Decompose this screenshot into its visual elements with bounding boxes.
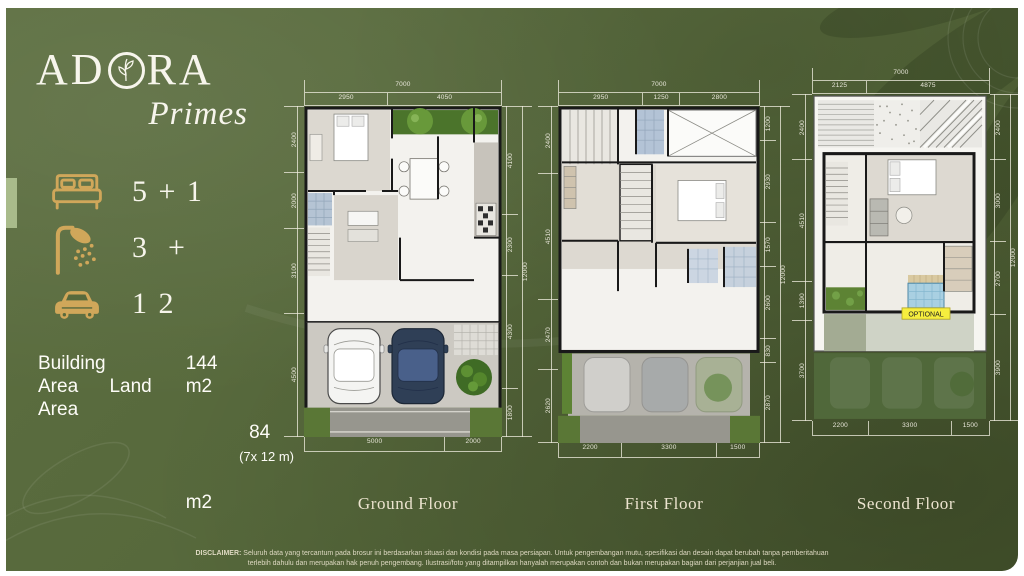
- dimension-label: 1200: [765, 116, 772, 131]
- dimension-segment: 12000: [1006, 94, 1018, 421]
- dimension-segment: 1200: [760, 106, 776, 140]
- second-floor-title: Second Floor: [792, 494, 1018, 514]
- dimension-segment: 3700: [792, 320, 812, 421]
- dimension-segment: 1800: [502, 388, 518, 437]
- dimension-segment: 4100: [502, 106, 518, 214]
- dimension-label: 2470: [545, 327, 552, 342]
- dimension-label: 2620: [545, 398, 552, 413]
- dimension-label: 2125: [832, 81, 847, 91]
- dimension-label: 2870: [765, 395, 772, 410]
- optional-label: OPTIONAL: [908, 311, 943, 319]
- dimension-segment: 2400: [792, 94, 812, 159]
- first-floor-plan: [558, 106, 760, 443]
- dimension-label: 4875: [920, 81, 935, 91]
- dimension-label: 1500: [730, 443, 745, 453]
- dimension-label: 7000: [395, 80, 410, 90]
- dimension-segment: 4875: [866, 81, 990, 94]
- dimension-label: 1250: [653, 93, 668, 103]
- dimension-label: 12000: [780, 265, 787, 284]
- bathrooms-count: 3 +: [132, 231, 187, 265]
- ground-floor-title: Ground Floor: [284, 494, 532, 514]
- spec-bathrooms: 3 +: [50, 226, 204, 270]
- dimension-label: 2600: [765, 295, 772, 310]
- dimension-segment: 12000: [518, 106, 532, 437]
- dimension-segment: 2200: [558, 443, 621, 458]
- dimension-label: 3300: [902, 421, 917, 431]
- dimension-segment: 2400: [284, 106, 304, 172]
- dimension-segment: 4510: [538, 173, 558, 299]
- leaf-circle-icon: [108, 52, 145, 89]
- brand-name-pre: AD: [36, 46, 106, 94]
- first-floor-title: First Floor: [538, 494, 790, 514]
- dim-bottom-segments: 220033001500: [558, 443, 760, 458]
- ground-floor-panel: 7000 29504050 2400200031004500: [284, 80, 532, 452]
- dimension-segment: 4300: [502, 275, 518, 388]
- dimension-label: 2400: [799, 120, 806, 135]
- building-area-label: Building: [38, 352, 152, 375]
- dimension-segment: 2950: [558, 93, 642, 106]
- dimension-segment: 1500: [716, 443, 760, 458]
- land-area-label: Land: [109, 375, 151, 398]
- area-info: Building Area Land Area 144 m2 84 (7x 12…: [38, 352, 294, 514]
- dimension-segment: 2800: [679, 93, 760, 106]
- building-area-unit: m2: [186, 375, 294, 398]
- dimension-segment: 7000: [558, 80, 760, 93]
- dimension-label: 7000: [893, 68, 908, 78]
- dimension-label: 2400: [545, 133, 552, 148]
- dim-bottom-segments: 220033001500: [812, 421, 990, 436]
- ground-floor-plan: [304, 106, 502, 437]
- dim-top-total: 7000: [558, 80, 760, 93]
- dimension-label: 1390: [799, 293, 806, 308]
- dimension-segment: 2600: [760, 266, 776, 339]
- dimension-segment: 2000: [284, 172, 304, 227]
- dim-right-total: 12000: [518, 106, 532, 437]
- dimension-label: 3100: [291, 263, 298, 278]
- area-values: 144 m2 84 (7x 12 m) m2: [186, 352, 294, 514]
- dimension-segment: 2950: [304, 93, 387, 106]
- dimension-label: 2200: [582, 443, 597, 453]
- dimension-label: 4100: [507, 153, 514, 168]
- dimension-label: 3900: [995, 360, 1002, 375]
- dimension-label: 2950: [593, 93, 608, 103]
- building-area-value: 144: [186, 352, 294, 375]
- dimension-segment: 830: [760, 338, 776, 362]
- dim-top-total: 7000: [812, 68, 990, 81]
- dimension-label: 7000: [651, 80, 666, 90]
- dimension-segment: 3000: [990, 159, 1006, 241]
- brochure-canvas: AD RA Primes: [6, 8, 1018, 571]
- dimension-segment: 2870: [760, 362, 776, 443]
- dim-right-segments: 2400300027003900: [990, 94, 1006, 421]
- dimension-segment: 3300: [868, 421, 951, 436]
- land-area-label-2: Area: [38, 398, 152, 421]
- bed-icon: [50, 171, 104, 213]
- dimension-label: 3000: [995, 193, 1002, 208]
- dimension-label: 12000: [1010, 248, 1017, 267]
- dimension-segment: 3300: [621, 443, 715, 458]
- dimension-label: 4050: [437, 93, 452, 103]
- spec-bedrooms: 5 + 1: [50, 170, 204, 214]
- left-accent-tab: [6, 178, 17, 228]
- second-floor-panel: 7000 21254875 2400451013903700: [792, 68, 1018, 436]
- dimension-segment: 2930: [760, 140, 776, 222]
- dimension-label: 1570: [765, 237, 772, 252]
- dimension-segment: 2000: [444, 437, 502, 452]
- brand-block: AD RA Primes: [36, 46, 248, 133]
- land-area-value: 84: [249, 422, 270, 443]
- dimension-label: 1500: [963, 421, 978, 431]
- brand-subtitle: Primes: [36, 96, 248, 133]
- dimension-segment: 2620: [538, 369, 558, 443]
- dimension-segment: 2300: [502, 214, 518, 275]
- disclaimer-line2: terlebih dahulu dan merupakan hak penuh …: [182, 559, 842, 569]
- dimension-label: 2000: [291, 193, 298, 208]
- second-floor-plan: OPTIONAL: [812, 94, 990, 421]
- dim-left-segments: 2400451024702620: [538, 106, 558, 443]
- dim-right-total: 12000: [1006, 94, 1018, 421]
- spec-carport: 1 2: [50, 282, 204, 326]
- dimension-label: 3300: [661, 443, 676, 453]
- first-floor-panel: 7000 295012502800 2400451024702620: [538, 80, 790, 458]
- dimension-label: 2400: [291, 132, 298, 147]
- spec-list: 5 + 1 3 +: [50, 170, 204, 338]
- dimension-segment: 3900: [990, 314, 1006, 421]
- bedrooms-count: 5 + 1: [132, 175, 204, 209]
- dim-top-segments: 21254875: [812, 81, 990, 94]
- dimension-segment: 2400: [990, 94, 1006, 159]
- dim-top-total: 7000: [304, 80, 502, 93]
- optional-tag: OPTIONAL: [902, 308, 950, 319]
- dimension-segment: 2400: [538, 106, 558, 173]
- dim-right-total: 12000: [776, 106, 790, 443]
- disclaimer: DISCLAIMER: Seluruh data yang tercantum …: [6, 549, 1018, 568]
- brochure-page: AD RA Primes: [0, 0, 1024, 576]
- dimension-label: 4300: [507, 324, 514, 339]
- dimension-segment: 1500: [951, 421, 990, 436]
- dimension-segment: 2125: [812, 81, 866, 94]
- dimension-label: 3700: [799, 363, 806, 378]
- dim-top-segments: 295012502800: [558, 93, 760, 106]
- dimension-segment: 2200: [812, 421, 868, 436]
- dimension-label: 4510: [799, 213, 806, 228]
- dimension-segment: 3100: [284, 228, 304, 313]
- dimension-label: 2200: [833, 421, 848, 431]
- dimension-segment: 1250: [642, 93, 678, 106]
- dimension-label: 4500: [291, 367, 298, 382]
- dimension-segment: 4050: [387, 93, 502, 106]
- dimension-segment: 12000: [776, 106, 790, 443]
- dimension-label: 2700: [995, 271, 1002, 286]
- dimension-label: 1800: [507, 405, 514, 420]
- disclaimer-line1: Seluruh data yang tercantum pada brosur …: [243, 550, 828, 557]
- brand-name-post: RA: [147, 46, 214, 94]
- dimension-label: 2930: [765, 174, 772, 189]
- dimension-segment: 1570: [760, 222, 776, 266]
- dim-left-segments: 2400451013903700: [792, 94, 812, 421]
- dimension-label: 2400: [995, 120, 1002, 135]
- dimension-label: 830: [765, 345, 772, 356]
- dimension-label: 2800: [712, 93, 727, 103]
- dimension-segment: 2700: [990, 241, 1006, 314]
- dimension-segment: 4510: [792, 159, 812, 281]
- area-labels: Building Area Land Area: [38, 352, 152, 514]
- dim-right-segments: 4100230043001800: [502, 106, 518, 437]
- dimension-segment: 7000: [812, 68, 990, 81]
- dimension-label: 5000: [367, 437, 382, 447]
- dim-left-segments: 2400200031004500: [284, 106, 304, 437]
- dimension-segment: 7000: [304, 80, 502, 93]
- dimension-segment: 5000: [304, 437, 444, 452]
- disclaimer-prefix: DISCLAIMER:: [195, 550, 241, 557]
- dimension-segment: 1390: [792, 281, 812, 319]
- dim-right-segments: 12002930157026008302870: [760, 106, 776, 443]
- land-area-unit: m2: [186, 491, 294, 514]
- dimension-label: 2950: [338, 93, 353, 103]
- dimension-label: 2000: [466, 437, 481, 447]
- brand-name: AD RA: [36, 46, 248, 94]
- dim-top-segments: 29504050: [304, 93, 502, 106]
- building-area-label-2: Area: [38, 375, 78, 398]
- dimension-segment: 4500: [284, 313, 304, 437]
- shower-icon: [50, 227, 104, 269]
- dimension-label: 2300: [507, 237, 514, 252]
- dimension-label: 4510: [545, 229, 552, 244]
- dimension-label: 12000: [522, 262, 529, 281]
- dim-bottom-segments: 50002000: [304, 437, 502, 452]
- carport-count: 1 2: [132, 287, 176, 321]
- dimension-segment: 2470: [538, 299, 558, 368]
- car-icon: [50, 283, 104, 325]
